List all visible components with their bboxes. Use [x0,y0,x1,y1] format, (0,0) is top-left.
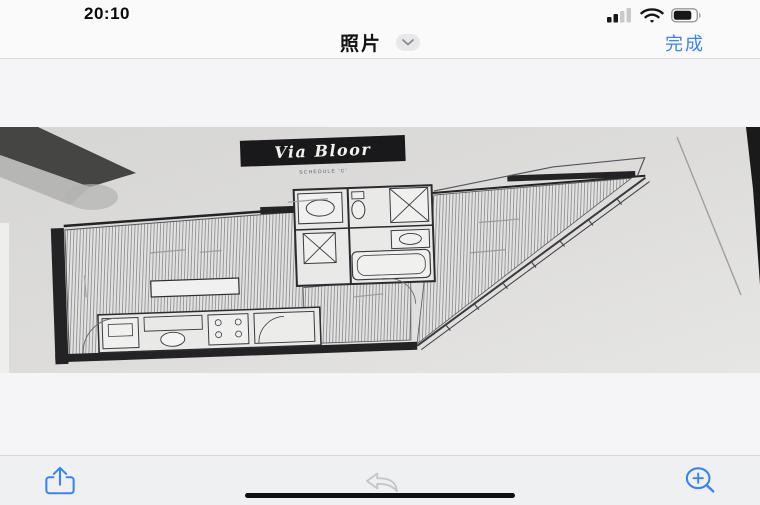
zoom-in-button[interactable] [680,463,722,499]
status-bar: 20:10 [0,0,760,30]
plan-title: Via Bloor [274,140,372,162]
status-time: 20:10 [84,4,130,24]
kitchen-island [151,278,240,297]
floor-plan-drawing: Via Bloor SCHEDULE 'C' [0,127,760,373]
battery-icon [671,8,702,23]
cellular-signal-icon [607,8,633,23]
reply-button[interactable] [356,465,406,497]
kitchen-block [98,307,321,353]
chevron-down-icon [402,39,414,46]
photo-viewer-screen: 20:10 [0,0,760,505]
content-area: Via Bloor SCHEDULE 'C' [0,59,760,455]
zoom-in-icon [682,465,720,497]
share-icon [40,465,80,497]
nav-bar: 照片 完成 [0,28,760,58]
top-bar: 20:10 [0,0,760,59]
title-dropdown-button[interactable] [396,34,420,51]
wifi-icon [640,8,664,23]
floor-plan-photo[interactable]: Via Bloor SCHEDULE 'C' [0,127,760,373]
status-icons [607,6,702,24]
page-title: 照片 [340,29,382,56]
reply-icon [358,467,404,495]
done-button[interactable]: 完成 [665,30,705,56]
home-indicator[interactable] [245,493,515,498]
title-group: 照片 [340,28,420,56]
share-button[interactable] [38,463,82,499]
